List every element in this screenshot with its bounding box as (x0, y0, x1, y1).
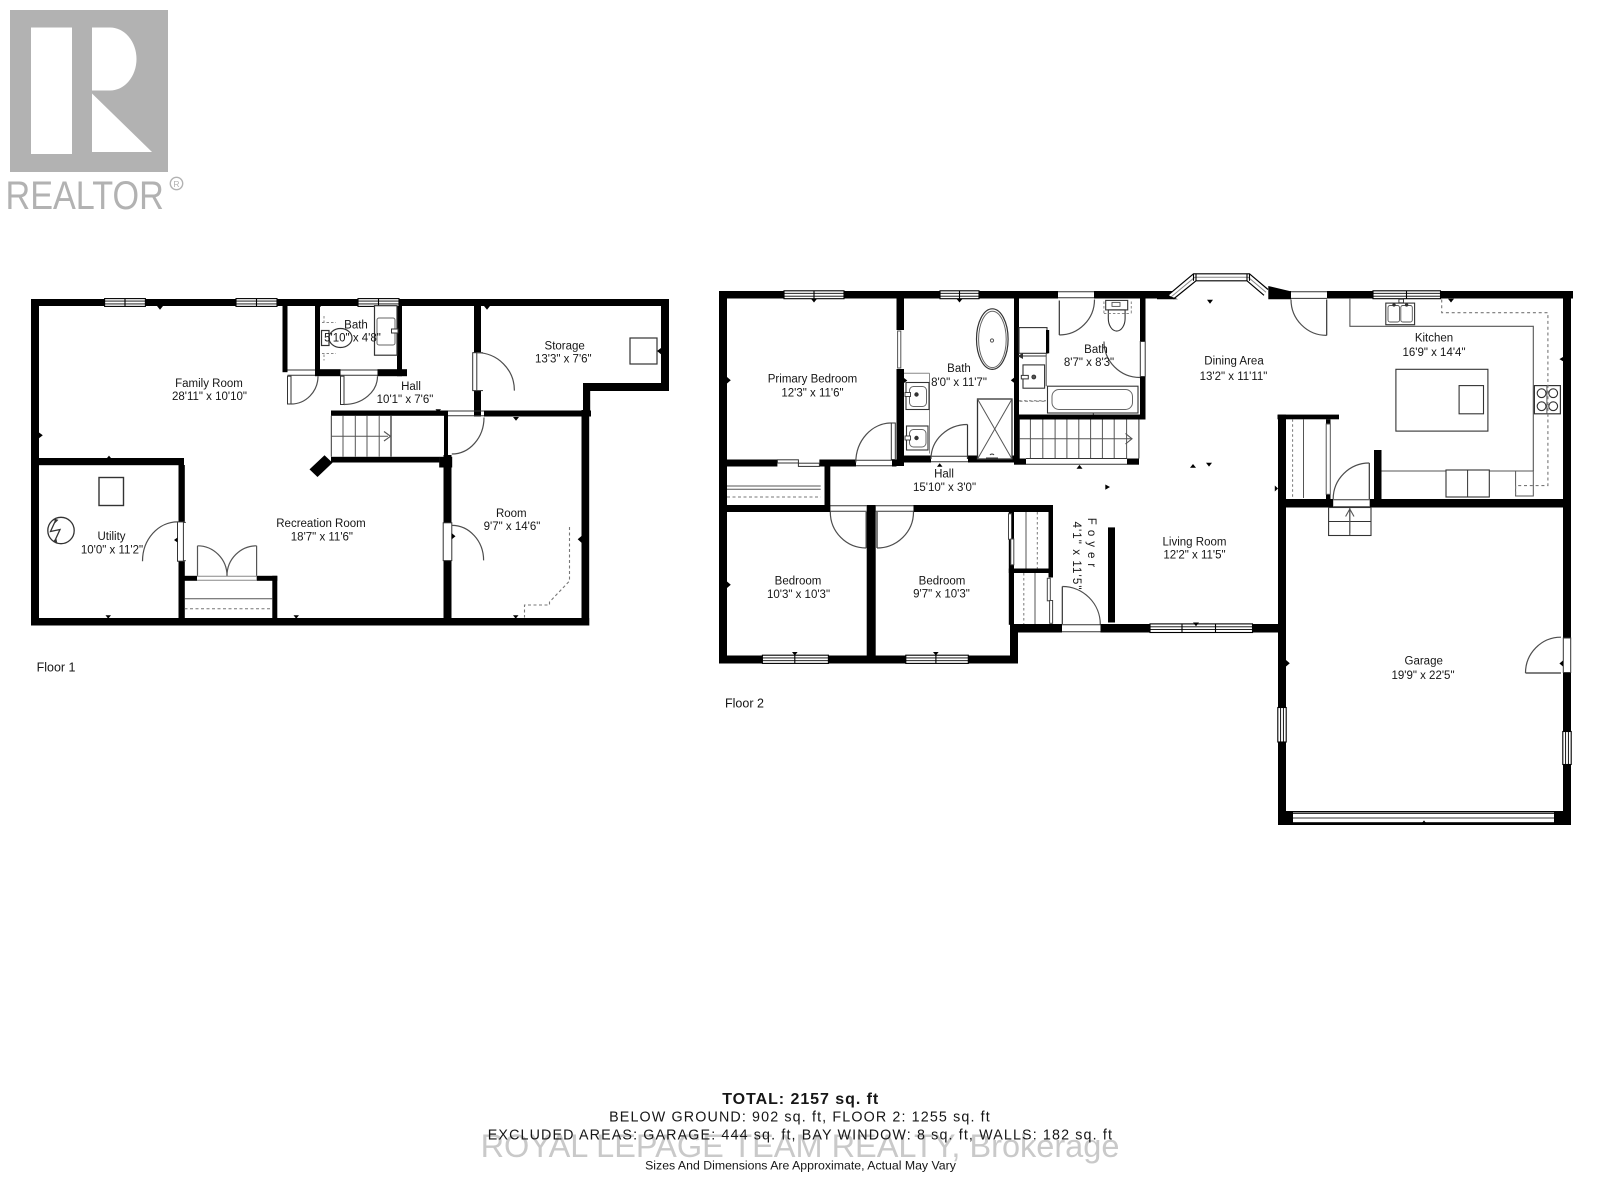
svg-text:5'10" x 4'8": 5'10" x 4'8" (324, 333, 381, 345)
svg-text:Hall: Hall (401, 381, 421, 393)
svg-text:Sizes And Dimensions Are Appro: Sizes And Dimensions Are Approximate, Ac… (645, 1159, 957, 1173)
svg-text:BELOW GROUND: 902 sq. ft, FLOO: BELOW GROUND: 902 sq. ft, FLOOR 2: 1255 … (609, 1110, 991, 1126)
svg-text:10'0" x 11'2": 10'0" x 11'2" (81, 545, 143, 557)
svg-text:8'0" x 11'7": 8'0" x 11'7" (931, 377, 987, 389)
svg-text:Room: Room (496, 508, 527, 520)
svg-text:12'2" x 11'5": 12'2" x 11'5" (1163, 550, 1225, 562)
svg-text:13'2" x 11'11": 13'2" x 11'11" (1200, 371, 1268, 383)
svg-text:4'1" x 11'5": 4'1" x 11'5" (1070, 521, 1082, 590)
svg-text:Bath: Bath (1084, 344, 1108, 356)
svg-text:13'3" x 7'6": 13'3" x 7'6" (535, 354, 592, 366)
svg-text:9'7" x 10'3": 9'7" x 10'3" (913, 589, 970, 601)
svg-text:Floor 1: Floor 1 (37, 661, 76, 675)
svg-text:Hall: Hall (934, 469, 954, 481)
svg-text:Recreation Room: Recreation Room (276, 518, 365, 530)
svg-text:16'9" x 14'4": 16'9" x 14'4" (1402, 347, 1465, 359)
svg-text:Garage: Garage (1405, 656, 1443, 668)
svg-text:10'3" x 10'3": 10'3" x 10'3" (767, 589, 830, 601)
svg-text:9'7" x 14'6": 9'7" x 14'6" (484, 521, 541, 533)
svg-text:R: R (173, 179, 179, 189)
svg-text:28'11" x 10'10": 28'11" x 10'10" (172, 391, 247, 403)
svg-text:Dining Area: Dining Area (1204, 356, 1264, 368)
svg-text:Bedroom: Bedroom (919, 576, 966, 588)
svg-text:Kitchen: Kitchen (1415, 333, 1453, 345)
svg-text:15'10" x 3'0": 15'10" x 3'0" (913, 482, 976, 494)
svg-text:Bath: Bath (947, 363, 971, 375)
svg-text:REALTOR: REALTOR (6, 172, 164, 217)
svg-text:19'9" x 22'5": 19'9" x 22'5" (1391, 670, 1454, 682)
svg-text:TOTAL: 2157 sq. ft: TOTAL: 2157 sq. ft (722, 1091, 879, 1108)
svg-text:Primary Bedroom: Primary Bedroom (768, 374, 857, 386)
svg-text:18'7" x 11'6": 18'7" x 11'6" (291, 532, 353, 544)
svg-text:Bath: Bath (344, 320, 368, 332)
svg-text:Living Room: Living Room (1163, 537, 1227, 549)
svg-text:Utility: Utility (97, 531, 125, 543)
svg-text:12'3" x 11'6": 12'3" x 11'6" (781, 388, 843, 400)
svg-text:8'7" x 8'3": 8'7" x 8'3" (1064, 357, 1114, 369)
svg-text:Foyer: Foyer (1085, 518, 1097, 572)
svg-text:Floor 2: Floor 2 (725, 697, 764, 711)
svg-text:Bedroom: Bedroom (775, 576, 822, 588)
svg-text:Storage: Storage (545, 340, 585, 352)
svg-text:10'1" x 7'6": 10'1" x 7'6" (377, 394, 434, 406)
svg-text:Family Room: Family Room (175, 378, 243, 390)
svg-text:EXCLUDED AREAS: GARAGE: 444 sq: EXCLUDED AREAS: GARAGE: 444 sq. ft, BAY … (488, 1128, 1113, 1144)
